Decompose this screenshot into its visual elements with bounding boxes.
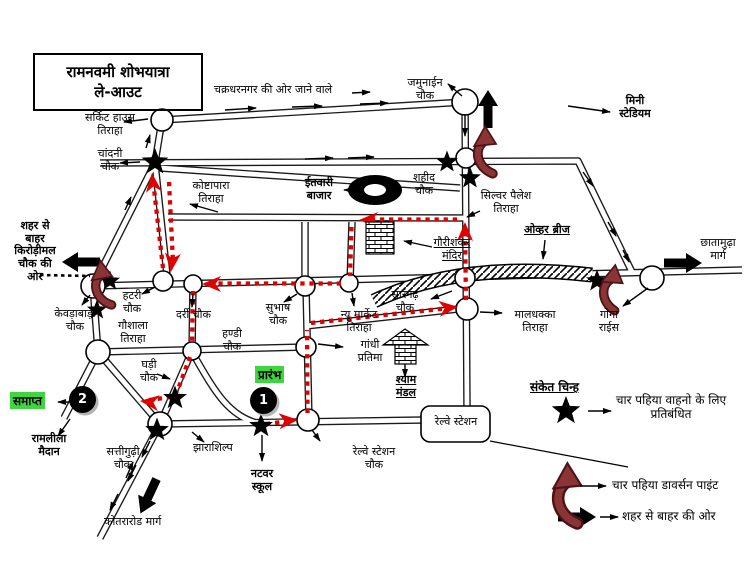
label-subhash-chowk: सुभाष चौक — [256, 302, 300, 327]
ramnavami-route-map: रामनवमी शोभयात्रा ले-आउट सर्किट हाउस तिर… — [0, 0, 750, 579]
label-natwar-school: नटवर स्कूल — [238, 468, 286, 493]
gaurishankar-mandir-icon — [366, 222, 394, 254]
start-badge: प्रारंभ — [255, 366, 284, 383]
label-circuit-house: सर्किट हाउस तिराहा — [78, 112, 142, 137]
label-gaushala-tiraha: गौशाला तिराहा — [110, 320, 156, 345]
label-over-bridge: ओव्हर ब्रीज — [524, 224, 570, 237]
label-itwari-bazar: ईतवारी बाजार — [296, 177, 342, 202]
label-sarangarh-chowk: सारंगढ़ चौक — [380, 289, 430, 314]
label-silver-palace: सिल्वर पैलेश तिराहा — [476, 190, 536, 215]
label-sattigudhi-chowk: सत्तीगुढ़ी चौक — [96, 446, 150, 471]
map-title-line2: ले-आउट — [94, 82, 142, 102]
label-shyam-mandal: श्याम मंडल — [386, 374, 426, 399]
label-mini-stadium: मिनी स्टेडियम — [606, 95, 664, 120]
label-kotra-road: कोतरारोड मार्ग — [104, 516, 161, 529]
label-darri-chowk: दर्री चौक — [176, 309, 211, 322]
label-jamunain-chowk: जमुनाईन चौक — [396, 77, 454, 102]
legend-item-out-of-city: शहर से बाहर की ओर — [622, 510, 716, 524]
start-number-disc: 1 — [250, 387, 277, 414]
label-koshtapara: कोष्टापारा तिराहा — [180, 180, 242, 205]
label-ramlila-maidan: रामलीला मैदान — [22, 433, 76, 458]
rail-line — [490, 441, 628, 467]
label-sheher-se-bahar: शहर से बाहर किरोड़ीमल चौक की ओर — [8, 220, 62, 283]
end-badge: समाप्त — [10, 392, 45, 409]
itwari-bazar-icon — [348, 175, 402, 205]
roads-core — [64, 102, 742, 538]
label-railway-station-chowk: रेल्वे स्टेशन चौक — [342, 446, 406, 471]
label-chakradharnagar: चक्रधरनगर की ओर जाने वाले — [214, 84, 332, 97]
legend-header: संकेत चिन्ह — [530, 381, 579, 395]
label-kevdabadi-chowk: केवड़ाबाड़ी चौक — [46, 308, 104, 333]
label-handi-chowk: हण्डी चौक — [211, 328, 253, 353]
label-gandhi-pratima: गांधी प्रतिमा — [347, 339, 393, 364]
label-chandni-chowk: चांदनी चौक — [88, 148, 132, 173]
label-chhatamudha-marg: छातामुढ़ा मार्ग — [693, 237, 743, 262]
map-title: रामनवमी शोभयात्रा ले-आउट — [33, 53, 203, 111]
label-jharashilp: झाराशिल्प — [193, 442, 233, 455]
label-hatri-chowk: हटरी चौक — [113, 290, 151, 315]
label-ghadi-chowk: घड़ी चौक — [131, 359, 167, 384]
label-maldhakka-tiraha: मालधक्का तिराहा — [504, 309, 566, 334]
legend-item-restricted: चार पहिया वाहनो के लिए प्रतिबंधित — [606, 394, 736, 422]
label-railway-station: रेल्वे स्टेशन — [423, 414, 489, 429]
map-title-line1: रामनवमी शोभयात्रा — [66, 62, 169, 82]
legend-item-diversion: चार पहिया डावर्सन पाइंट — [612, 479, 718, 493]
label-shahid-chowk: शहीद चौक — [404, 172, 444, 197]
end-number-disc: 2 — [69, 386, 96, 413]
label-goga-rice: गोगा राईस — [588, 309, 630, 334]
label-gaurishankar-mandir: गौरीशंकर मंदिर — [428, 237, 476, 262]
